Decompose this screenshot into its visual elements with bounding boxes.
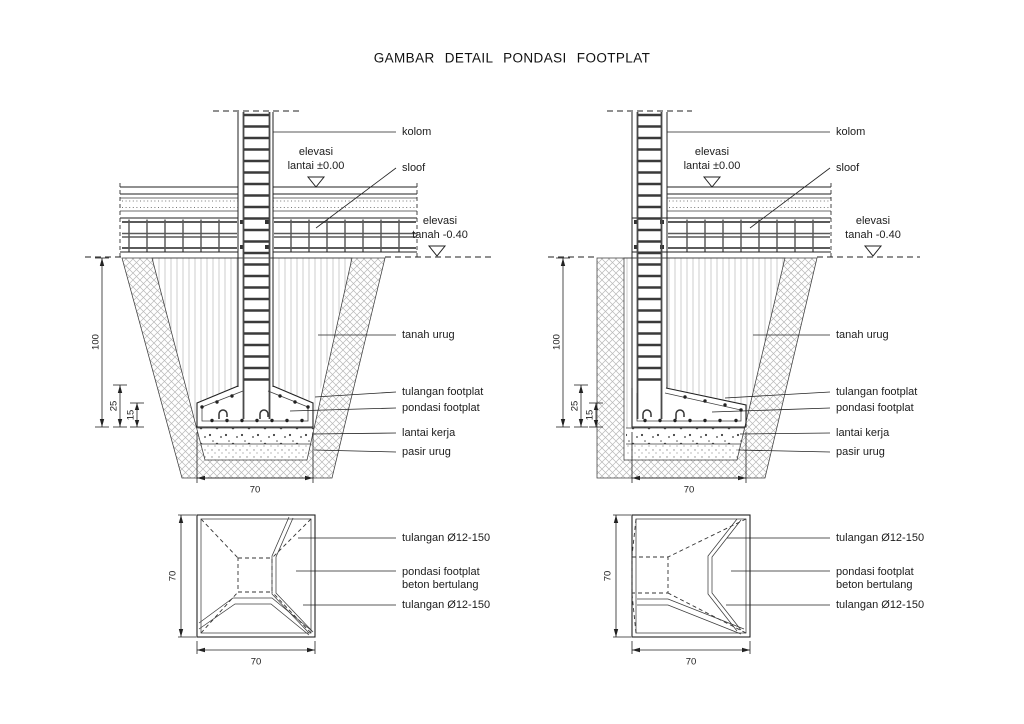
label-pasir-urug: pasir urug <box>402 446 451 458</box>
label-tanah-urug: tanah urug <box>402 329 455 341</box>
plan-rebar-bars <box>637 519 744 634</box>
drawing-canvas: GAMBAR DETAIL PONDASI FOOTPLAT <box>0 0 1024 724</box>
dim-footing-width-right: 70 <box>684 485 695 496</box>
dim-plan-height-right: 70 <box>603 571 614 582</box>
label-elevasi-tanah-1: elevasi <box>423 215 457 227</box>
dim-plan-width-right: 70 <box>686 657 697 668</box>
column <box>238 112 273 419</box>
dim-footing-edge: 15 <box>126 410 137 421</box>
label-elevasi-tanah-1-right: elevasi <box>856 215 890 227</box>
dim-footing-edge-right: 15 <box>585 410 596 421</box>
label-tulangan-footplat: tulangan footplat <box>402 386 483 398</box>
ground-level-marker <box>429 246 445 256</box>
label-tulangan-top: tulangan Ø12-150 <box>402 532 490 544</box>
lean-concrete-layer <box>626 428 746 444</box>
sand-layer <box>626 444 740 460</box>
column-plan-outline <box>238 558 272 592</box>
label-pondasi-plan-1-right: pondasi footplat <box>836 566 914 578</box>
label-tulangan-footplat-right: tulangan footplat <box>836 386 917 398</box>
label-kolom: kolom <box>402 126 431 138</box>
label-sloof: sloof <box>402 162 426 174</box>
dim-footing-width: 70 <box>250 485 261 496</box>
dim-plan-height: 70 <box>168 571 179 582</box>
dim-depth-right: 100 <box>552 334 563 350</box>
floor-level-marker <box>704 177 720 187</box>
label-elevasi-lantai-1-right: elevasi <box>695 146 729 158</box>
label-pondasi-plan-2: beton bertulang <box>402 579 478 591</box>
dim-plan-width: 70 <box>251 657 262 668</box>
label-lantai-kerja: lantai kerja <box>402 427 456 439</box>
label-elevasi-lantai-2: lantai ±0.00 <box>288 160 345 172</box>
label-elevasi-lantai-2-right: lantai ±0.00 <box>684 160 741 172</box>
column <box>632 112 667 427</box>
column-plan-outline <box>632 557 668 593</box>
ground-level-marker <box>865 246 881 256</box>
label-tulangan-bottom: tulangan Ø12-150 <box>402 599 490 611</box>
drawing-sheet: GAMBAR DETAIL PONDASI FOOTPLAT <box>0 0 1024 724</box>
label-pondasi-plan-1: pondasi footplat <box>402 566 480 578</box>
dim-footing-height-right: 25 <box>570 401 581 412</box>
label-tulangan-bottom-right: tulangan Ø12-150 <box>836 599 924 611</box>
label-elevasi-tanah-2-right: tanah -0.40 <box>845 229 901 241</box>
sand-layer <box>198 444 310 460</box>
label-pondasi-footplat: pondasi footplat <box>402 402 480 414</box>
page-title: GAMBAR DETAIL PONDASI FOOTPLAT <box>374 51 651 66</box>
lean-concrete-layer <box>194 428 314 444</box>
label-tanah-urug-right: tanah urug <box>836 329 889 341</box>
label-tulangan-top-right: tulangan Ø12-150 <box>836 532 924 544</box>
label-pondasi-plan-2-right: beton bertulang <box>836 579 912 591</box>
dim-depth: 100 <box>91 334 102 350</box>
label-pondasi-footplat-right: pondasi footplat <box>836 402 914 414</box>
floor-level-marker <box>308 177 324 187</box>
leader-lines <box>726 538 830 605</box>
floor-slab <box>667 187 831 211</box>
label-kolom-right: kolom <box>836 126 865 138</box>
label-elevasi-lantai-1: elevasi <box>299 146 333 158</box>
dim-footing-height: 25 <box>109 401 120 412</box>
label-elevasi-tanah-2: tanah -0.40 <box>412 229 468 241</box>
label-sloof-right: sloof <box>836 162 860 174</box>
right-plan-view <box>613 515 830 654</box>
left-plan-view <box>178 515 396 654</box>
label-lantai-kerja-right: lantai kerja <box>836 427 890 439</box>
label-pasir-urug-right: pasir urug <box>836 446 885 458</box>
